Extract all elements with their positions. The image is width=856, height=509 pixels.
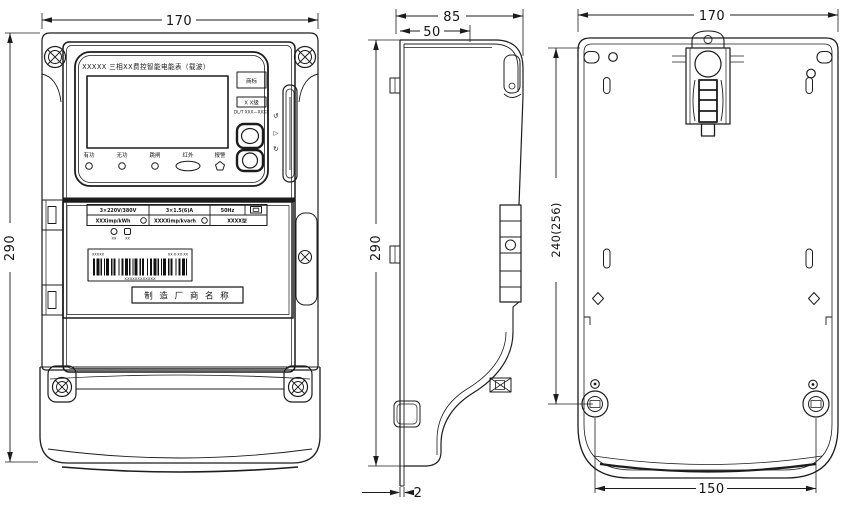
led-alarm bbox=[216, 162, 225, 171]
manufacturer-name: 制 造 厂 商 名 称 bbox=[144, 291, 231, 302]
front-view: 170 290 XXXXX 三相XX费 bbox=[3, 13, 320, 472]
vent-slot-upper-right bbox=[806, 78, 813, 94]
vent-slot-upper-left bbox=[604, 78, 611, 94]
led-active bbox=[86, 163, 93, 170]
dim-mount-span-label: 240(256) bbox=[549, 202, 563, 257]
label-infrared: 红外 bbox=[182, 151, 194, 159]
side-terminal-cover-curve bbox=[404, 332, 513, 466]
pulse-led-right bbox=[125, 229, 131, 235]
engineering-drawing-meter: 170 290 XXXXX 三相XX费 bbox=[0, 0, 856, 509]
terminal-cover bbox=[40, 366, 320, 472]
cover-hinge-bottom bbox=[42, 230, 63, 315]
dim-back-width: 170 bbox=[578, 9, 838, 32]
current-value: 3×1.5(6)A bbox=[166, 208, 194, 214]
back-shell-outline bbox=[578, 38, 838, 478]
lcd-screen bbox=[87, 76, 228, 148]
infrared-window bbox=[176, 161, 200, 171]
barcode-number: XXXXXXXXXXXX bbox=[124, 276, 156, 281]
dim-side-depth-label: 85 bbox=[443, 10, 461, 25]
dim-side-front-depth-label: 50 bbox=[423, 25, 441, 40]
label-reactive: 无功 bbox=[116, 151, 128, 159]
dim-screw-span-label: 150 bbox=[698, 482, 724, 497]
led-trip bbox=[152, 163, 159, 170]
dim-plate-thickness-label: 2 bbox=[414, 486, 423, 501]
dim-front-height: 290 bbox=[3, 33, 40, 462]
plate-hanging-notch bbox=[394, 401, 420, 427]
barcode-right-text: XX·X·XX·XX bbox=[168, 253, 189, 257]
vent-slot-mid-right bbox=[806, 249, 813, 268]
drawing-canvas: 170 290 XXXXX 三相XX费 bbox=[0, 0, 856, 509]
panel-button-row: 有功 无功 跳闸 红外 报警 bbox=[83, 151, 226, 171]
dim-side-height-label: 290 bbox=[369, 235, 384, 261]
dim-front-width: 170 bbox=[42, 13, 318, 29]
label-alarm: 报警 bbox=[214, 151, 226, 159]
nav-down-button[interactable] bbox=[237, 150, 263, 171]
hanging-hole bbox=[695, 51, 721, 77]
dim-plate-thickness: 2 bbox=[362, 486, 422, 501]
frequency-value: 50Hz bbox=[221, 208, 235, 214]
side-seal-screw-detail bbox=[490, 378, 511, 392]
dim-front-width-label: 170 bbox=[166, 14, 192, 29]
front-top-screw-right bbox=[295, 47, 316, 68]
barcode: XXXXX XX·X·XX·XX XXXXXXXXXXXX bbox=[88, 249, 192, 281]
class-label: X X级 bbox=[244, 99, 259, 107]
side-view: 85 50 290 2 bbox=[362, 9, 523, 501]
pulse-led-right-label: XX bbox=[125, 237, 130, 241]
voltage-value: 3×220V/380V bbox=[100, 208, 137, 214]
dim-back-width-label: 170 bbox=[699, 9, 725, 24]
vent-slot-mid-left bbox=[604, 249, 611, 268]
model-value: XXXX型 bbox=[227, 218, 247, 225]
hanger-lock-tab bbox=[702, 124, 715, 136]
reactive-constant: XXXXimp/kvarh bbox=[154, 219, 197, 225]
insulation-class-icon bbox=[251, 207, 262, 214]
dim-side-height: 290 bbox=[368, 40, 404, 466]
active-constant: XXXimp/kWh bbox=[96, 219, 131, 225]
hanger-pin-hole bbox=[704, 36, 712, 44]
play-icon: ▷ bbox=[274, 129, 279, 137]
dim-screw-span: 150 bbox=[595, 418, 816, 497]
dim-side-depth: 85 bbox=[396, 9, 523, 56]
nav-up-button[interactable] bbox=[237, 124, 263, 148]
mount-screw-left bbox=[582, 380, 608, 417]
comm-icon-top: ↺ bbox=[273, 112, 278, 120]
label-trip: 跳闸 bbox=[149, 151, 160, 159]
top-slot-right bbox=[817, 52, 832, 64]
barcode-left-text: XXXXX bbox=[92, 253, 105, 257]
led-reactive bbox=[119, 163, 126, 170]
cover-hinge-top bbox=[42, 200, 63, 230]
diamond-hole-left bbox=[593, 293, 604, 305]
label-active: 有功 bbox=[83, 151, 95, 159]
top-slot-left bbox=[584, 52, 599, 64]
hanger-bracket bbox=[672, 31, 744, 136]
back-view: 170 240(256) 150 bbox=[548, 9, 838, 497]
hanger-adjust-ladder bbox=[699, 80, 717, 122]
terminal-screw-left bbox=[53, 378, 72, 397]
standard-label: DL/T XXX—XXXX bbox=[234, 110, 269, 115]
mount-screw-right bbox=[803, 380, 829, 417]
terminal-screw-right bbox=[289, 378, 308, 397]
comm-icon-bottom: ↻ bbox=[273, 145, 278, 153]
pulse-symbol-reactive bbox=[202, 218, 208, 224]
pilot-hole-top-right bbox=[807, 69, 816, 78]
diamond-hole-right bbox=[809, 293, 820, 305]
pulse-led-left bbox=[111, 229, 117, 235]
side-back-plate bbox=[390, 40, 420, 486]
pilot-hole-top-left bbox=[609, 53, 618, 62]
side-tab-right bbox=[296, 213, 317, 305]
meter-title: XXXXX 三相XX费控智能电能表（载波） bbox=[82, 62, 210, 71]
trademark-label: 商标 bbox=[246, 77, 258, 85]
nameplate-table: 3×220V/380V 3×1.5(6)A 50Hz XXXimp/kWh XX… bbox=[87, 205, 267, 226]
pulse-symbol-active bbox=[141, 218, 147, 224]
pulse-led-left-label: XX bbox=[112, 237, 117, 241]
dim-front-height-label: 290 bbox=[3, 235, 18, 261]
dim-mount-span: 240(256) bbox=[548, 48, 593, 404]
